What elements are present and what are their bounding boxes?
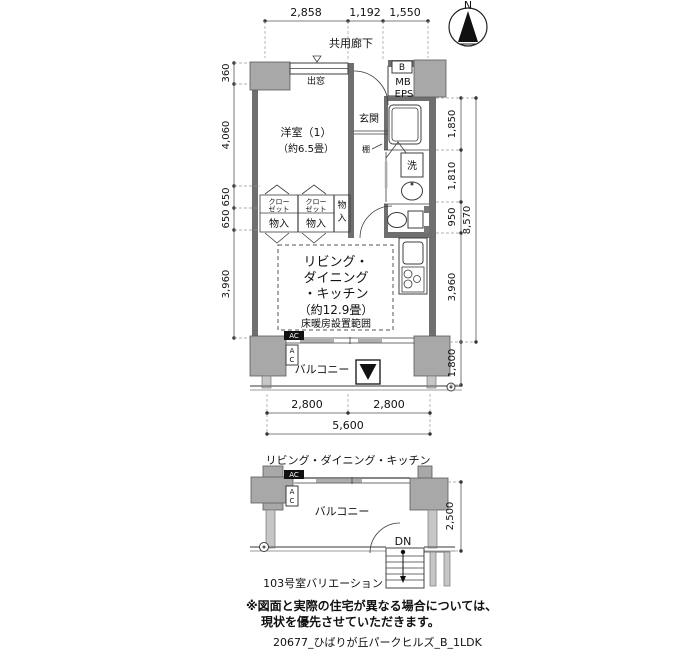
- shelf-label: 棚: [362, 144, 370, 154]
- dim-right-4: 3,960: [447, 273, 458, 302]
- pillar-top-right: [414, 60, 446, 97]
- north-compass: N: [449, 0, 487, 46]
- plan-title: 20677_ひばりが丘パークヒルズ_B_1LDK: [273, 635, 483, 649]
- storage-v-label-1: 物: [337, 199, 346, 211]
- dim-left-4: 650: [221, 209, 232, 228]
- bay-window: 出窓: [290, 56, 348, 87]
- dimension-top: 2,858 1,192 1,550: [263, 6, 429, 60]
- closet1-label-2: ゼット: [269, 205, 290, 214]
- kitchen-sink: [403, 242, 423, 264]
- closet-row: クロー ゼット クロー ゼット 物入 物入 物 入: [260, 185, 350, 243]
- dim-bottom-2: 2,800: [373, 398, 405, 411]
- bay-window-label: 出窓: [307, 75, 325, 87]
- balcony-sliding-doors: [286, 337, 414, 344]
- stair-fence: [424, 552, 450, 586]
- closet2-label-2: ゼット: [306, 205, 327, 214]
- balcony-label: バルコニー: [295, 363, 350, 376]
- dim-right-1: 1,850: [447, 110, 458, 139]
- ldk-room: リビング・ ダイニング ・キッチン （約12.9畳） 床暖房設置範囲: [278, 245, 393, 330]
- variation-pillar-right: [410, 478, 448, 510]
- note-line-2: 現状を優先させていただきます。: [261, 614, 440, 629]
- dim-bottom-total: 5,600: [332, 419, 364, 432]
- dim-bottom-1: 2,800: [291, 398, 323, 411]
- dim-left-5: 3,960: [221, 270, 232, 299]
- variation-ac-tag-label: AC: [289, 471, 299, 479]
- bathtub: [389, 105, 421, 144]
- variation-plan: リビング・ダイニング・キッチン AC A C バルコニー DN: [250, 453, 463, 590]
- variation-ac-c: C: [290, 497, 295, 505]
- washer-label: 洗: [407, 160, 417, 172]
- meter-eps-label: EPS: [395, 89, 414, 100]
- ldk-label-1: リビング・: [303, 255, 368, 270]
- room1-size-label: （約6.5畳）: [278, 142, 334, 155]
- entrance-label: 玄関: [359, 112, 379, 125]
- dim-left-1: 360: [221, 63, 232, 82]
- dim-left-2: 4,060: [221, 121, 232, 150]
- variation-ac-a: A: [290, 488, 295, 496]
- ldk-size-label: （約12.9畳）: [299, 302, 374, 317]
- dim-left-3: 650: [221, 187, 232, 206]
- bathroom: [384, 105, 429, 158]
- floor-plan-page: N 2,858 1,192 1,550 共用廊下: [0, 0, 700, 650]
- variation-caption: 103号室バリエーション: [263, 576, 383, 590]
- floor-heating-label: 床暖房設置範囲: [301, 317, 371, 330]
- room1-name-label: 洋室（1）: [281, 125, 332, 139]
- stairs-down: DN: [386, 535, 424, 588]
- dim-top-3: 1,550: [389, 6, 421, 19]
- ac-box-a: A: [290, 347, 295, 355]
- main-floor-plan: 出窓 B MB EPS 玄関 洋室（1） （約6.5畳）: [250, 56, 462, 391]
- dim-top-1: 2,858: [290, 6, 322, 19]
- toilet-bowl: [388, 213, 407, 228]
- pillar-top-left: [250, 62, 290, 90]
- dim-top-2: 1,192: [349, 6, 381, 19]
- room1: 洋室（1） （約6.5畳）: [278, 125, 334, 155]
- washroom: 洗 棚: [362, 144, 423, 202]
- north-arrow-icon: [458, 11, 478, 42]
- compass-n-label: N: [464, 0, 472, 12]
- entrance-door-arc: [354, 71, 388, 105]
- closet-folding-door-icon: [265, 185, 326, 194]
- entrance-area: 玄関: [354, 71, 388, 134]
- pillar-bottom-right: [414, 336, 450, 376]
- ldk-label-2: ダイニング: [303, 271, 368, 286]
- dim-right-balcony: 1,800: [447, 349, 458, 378]
- corridor-label: 共用廊下: [329, 36, 373, 50]
- dim-right-2: 1,810: [447, 162, 458, 191]
- meter-mb-label: MB: [395, 77, 411, 88]
- ac-tag-label: AC: [289, 332, 299, 340]
- storage1-label: 物入: [269, 217, 289, 230]
- meter-box: B MB EPS: [392, 61, 413, 100]
- pillar-bottom-left: [250, 336, 286, 376]
- dim-variation-right: 2,500: [445, 502, 456, 531]
- note-line-1: ※図面と実際の住宅が異なる場合については、: [246, 598, 497, 613]
- variation-balcony-label: バルコニー: [315, 505, 370, 518]
- floor-plan-canvas: N 2,858 1,192 1,550 共用廊下: [0, 0, 700, 650]
- storage2-label: 物入: [306, 217, 326, 230]
- variation-ldk-label: リビング・ダイニング・キッチン: [266, 453, 431, 467]
- stairs-dn-label: DN: [395, 535, 412, 548]
- toilet-tank: [408, 211, 423, 228]
- meter-b-label: B: [399, 63, 405, 73]
- storage-v-label-2: 入: [337, 213, 346, 224]
- disclaimer-note: ※図面と実際の住宅が異なる場合については、 現状を優先させていただきます。: [246, 598, 497, 629]
- ldk-label-3: ・キッチン: [303, 287, 368, 302]
- toilet-room: [384, 204, 429, 233]
- dim-right-3: 950: [447, 207, 458, 226]
- vent-marker-icon: [313, 56, 321, 62]
- kitchen-counter: [399, 238, 427, 294]
- dim-right-total: 8,570: [462, 206, 473, 235]
- storage-folding-door-icon: [265, 233, 326, 243]
- dimension-bottom: 2,800 2,800 5,600: [265, 394, 431, 436]
